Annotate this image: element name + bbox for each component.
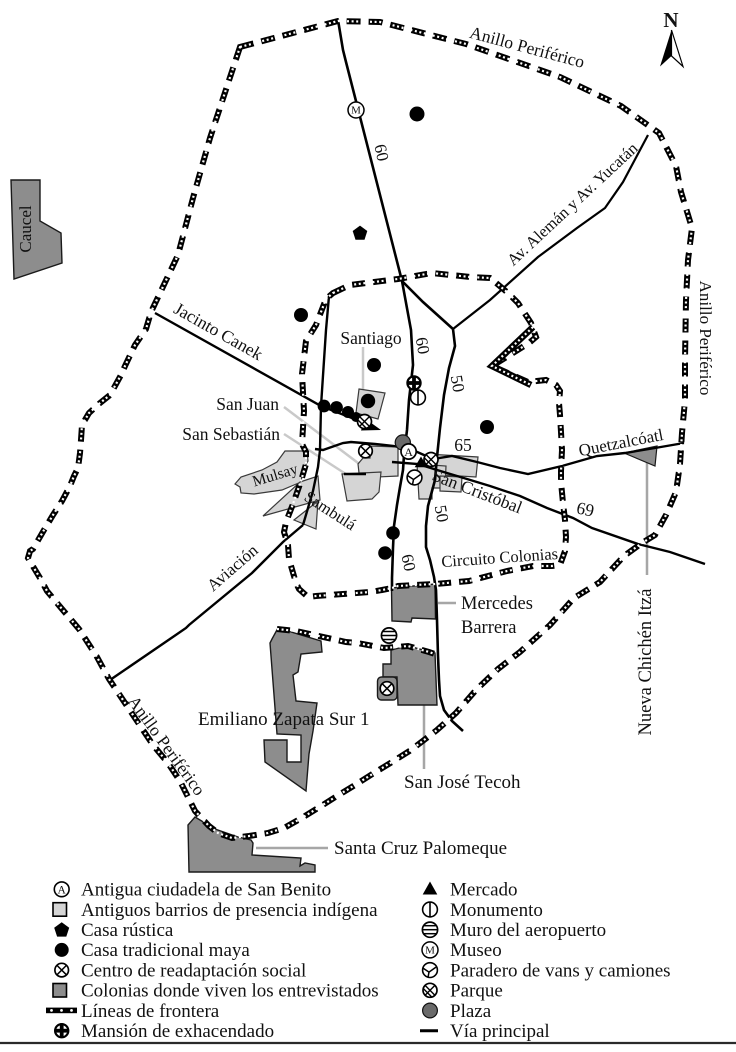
- svg-text:65: 65: [454, 435, 472, 455]
- svg-text:Casa tradicional maya: Casa tradicional maya: [81, 940, 250, 961]
- svg-text:Barrera: Barrera: [461, 618, 516, 638]
- svg-text:N: N: [663, 8, 678, 32]
- svg-text:Mansión de exhacendado: Mansión de exhacendado: [81, 1021, 274, 1042]
- svg-text:Caucel: Caucel: [16, 205, 35, 252]
- svg-text:Casa rústica: Casa rústica: [81, 920, 174, 941]
- svg-text:Muro del aeropuerto: Muro del aeropuerto: [450, 920, 606, 941]
- svg-text:60: 60: [412, 336, 434, 356]
- svg-text:Antigua ciudadela de San Benit: Antigua ciudadela de San Benito: [81, 880, 331, 901]
- svg-text:Mercado: Mercado: [450, 880, 518, 901]
- svg-text:Paradero de vans y camiones: Paradero de vans y camiones: [450, 960, 671, 981]
- svg-text:Nueva Chichén Itzá: Nueva Chichén Itzá: [636, 589, 656, 736]
- svg-text:Antiguos barrios de presencia: Antiguos barrios de presencia indígena: [81, 900, 378, 921]
- svg-text:Parque: Parque: [450, 981, 503, 1002]
- svg-text:San Sebastián: San Sebastián: [182, 424, 280, 444]
- svg-text:San José Tecoh: San José Tecoh: [404, 772, 521, 793]
- svg-text:50: 50: [447, 374, 469, 394]
- svg-text:Museo: Museo: [450, 940, 502, 961]
- svg-text:Anillo Periférico: Anillo Periférico: [696, 281, 715, 396]
- svg-text:50: 50: [431, 504, 453, 524]
- svg-text:Plaza: Plaza: [450, 1001, 492, 1022]
- svg-text:Santiago: Santiago: [340, 328, 401, 348]
- svg-text:Centro de readaptación social: Centro de readaptación social: [81, 960, 306, 981]
- svg-text:Emiliano Zapata Sur 1: Emiliano Zapata Sur 1: [198, 709, 369, 730]
- svg-text:Líneas de frontera: Líneas de frontera: [81, 1001, 220, 1022]
- svg-text:Vía principal: Vía principal: [450, 1021, 550, 1042]
- svg-text:Mercedes: Mercedes: [461, 594, 533, 614]
- svg-text:San Juan: San Juan: [216, 394, 279, 414]
- svg-text:A: A: [404, 445, 413, 459]
- svg-text:Monumento: Monumento: [450, 900, 543, 921]
- svg-text:Colonias donde viven los entre: Colonias donde viven los entrevistados: [81, 981, 379, 1002]
- svg-text:A: A: [58, 885, 67, 897]
- svg-text:Santa Cruz Palomeque: Santa Cruz Palomeque: [334, 838, 507, 859]
